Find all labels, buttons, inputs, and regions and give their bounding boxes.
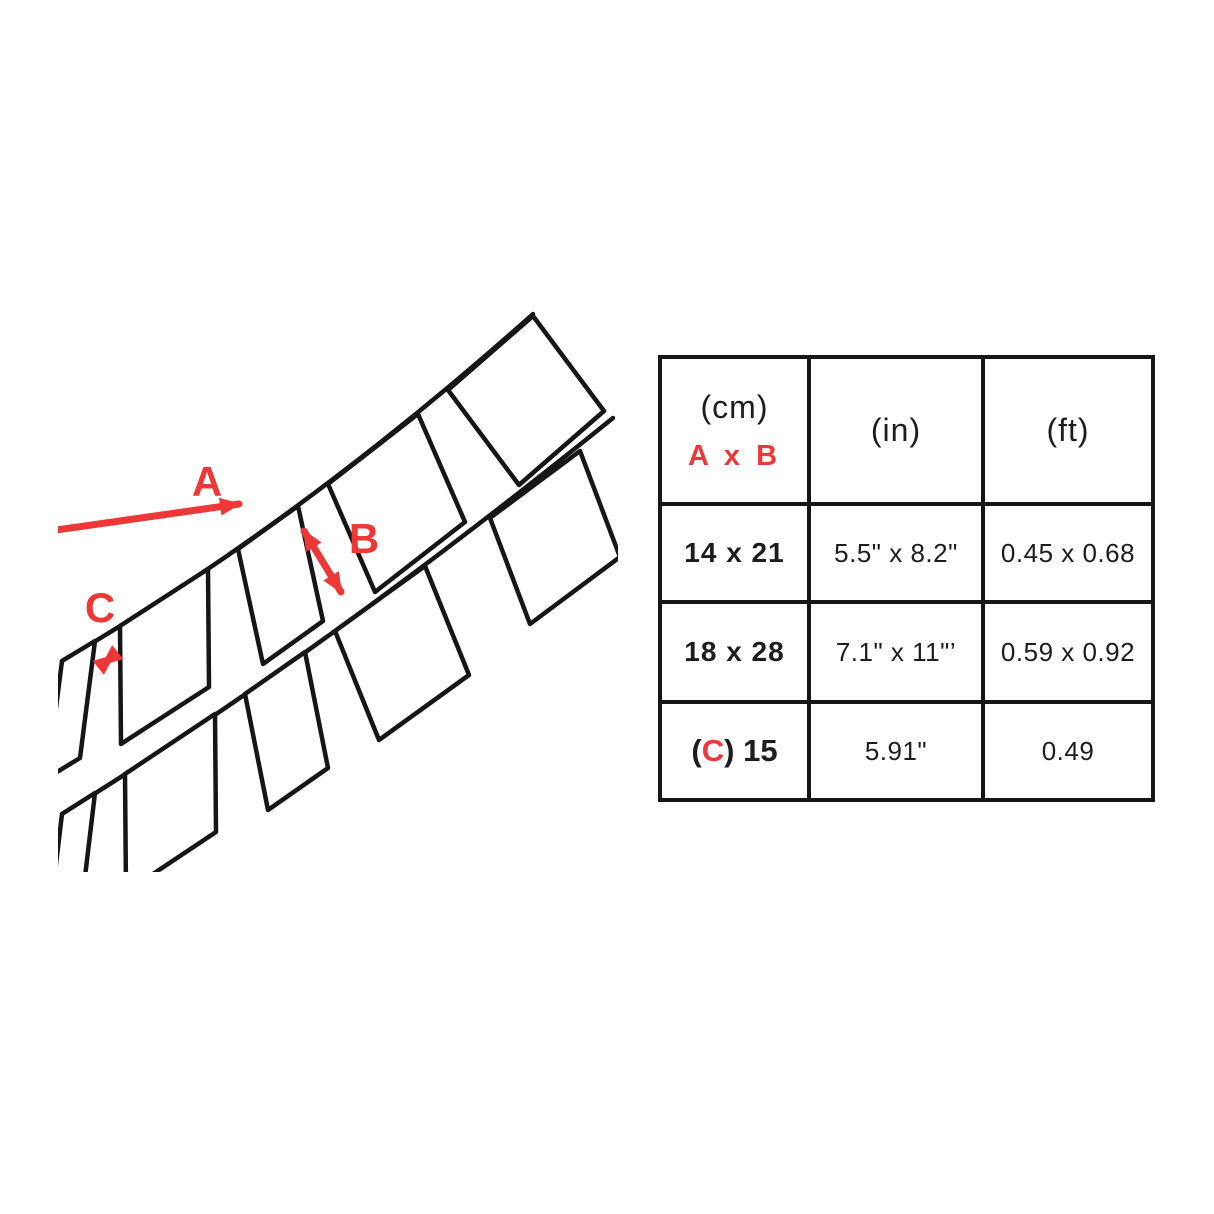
unit-ft-label: (ft) <box>1046 412 1089 449</box>
c-spacing-value: (C) 15 <box>691 733 777 769</box>
size-chart-infographic: A B C (cm) A x B (in) (ft) 14 x 21 5.5" … <box>0 0 1214 1214</box>
flag-pennant <box>47 641 95 778</box>
flag-pennant <box>125 714 216 892</box>
table-cell-cm-row1: 14 x 21 <box>662 506 807 600</box>
in-value: 5.91" <box>865 736 927 767</box>
table-cell-in-row1: 5.5" x 8.2" <box>811 506 981 600</box>
table-cell-ft-row1: 0.45 x 0.68 <box>985 506 1151 600</box>
table-cell-in-row2: 7.1" x 11"’ <box>811 604 981 700</box>
flag-pennant <box>48 793 95 931</box>
dimension-label-b: B <box>349 515 379 562</box>
in-value: 5.5" x 8.2" <box>834 538 958 569</box>
flag-pennant <box>120 569 209 744</box>
dimension-arrow-c <box>103 656 113 664</box>
unit-cm-label: (cm) <box>701 389 769 426</box>
flag-pennant <box>238 506 323 664</box>
paren-open: ( <box>691 733 701 768</box>
header-cell-ft: (ft) <box>985 359 1151 502</box>
paren-close-and-value: ) 15 <box>724 733 777 768</box>
flag-pennant <box>245 652 328 810</box>
flag-pennant <box>335 566 469 740</box>
flag-pennant <box>328 414 465 592</box>
table-cell-cm-row3: (C) 15 <box>662 704 807 798</box>
dimension-label-c: C <box>85 584 115 631</box>
table-cell-cm-row2: 18 x 28 <box>662 604 807 700</box>
table-cell-in-row3: 5.91" <box>811 704 981 798</box>
in-value: 7.1" x 11"’ <box>836 637 956 668</box>
unit-in-label: (in) <box>871 412 921 449</box>
table-cell-ft-row2: 0.59 x 0.92 <box>985 604 1151 700</box>
table-cell-ft-row3: 0.49 <box>985 704 1151 798</box>
ft-value: 0.49 <box>1042 736 1095 767</box>
flag-pennant <box>490 451 620 624</box>
axb-label: A x B <box>688 440 781 473</box>
size-conversion-table: (cm) A x B (in) (ft) 14 x 21 5.5" x 8.2"… <box>658 355 1155 802</box>
dimension-label-a: A <box>192 458 222 505</box>
c-letter: C <box>702 733 724 768</box>
ft-value: 0.59 x 0.92 <box>1001 637 1135 668</box>
dimension-arrow-a <box>0 504 239 538</box>
cm-value: 14 x 21 <box>684 537 784 569</box>
cm-value: 18 x 28 <box>684 636 784 668</box>
header-cell-in: (in) <box>811 359 981 502</box>
header-cell-cm: (cm) A x B <box>662 359 807 502</box>
ft-value: 0.45 x 0.68 <box>1001 538 1135 569</box>
